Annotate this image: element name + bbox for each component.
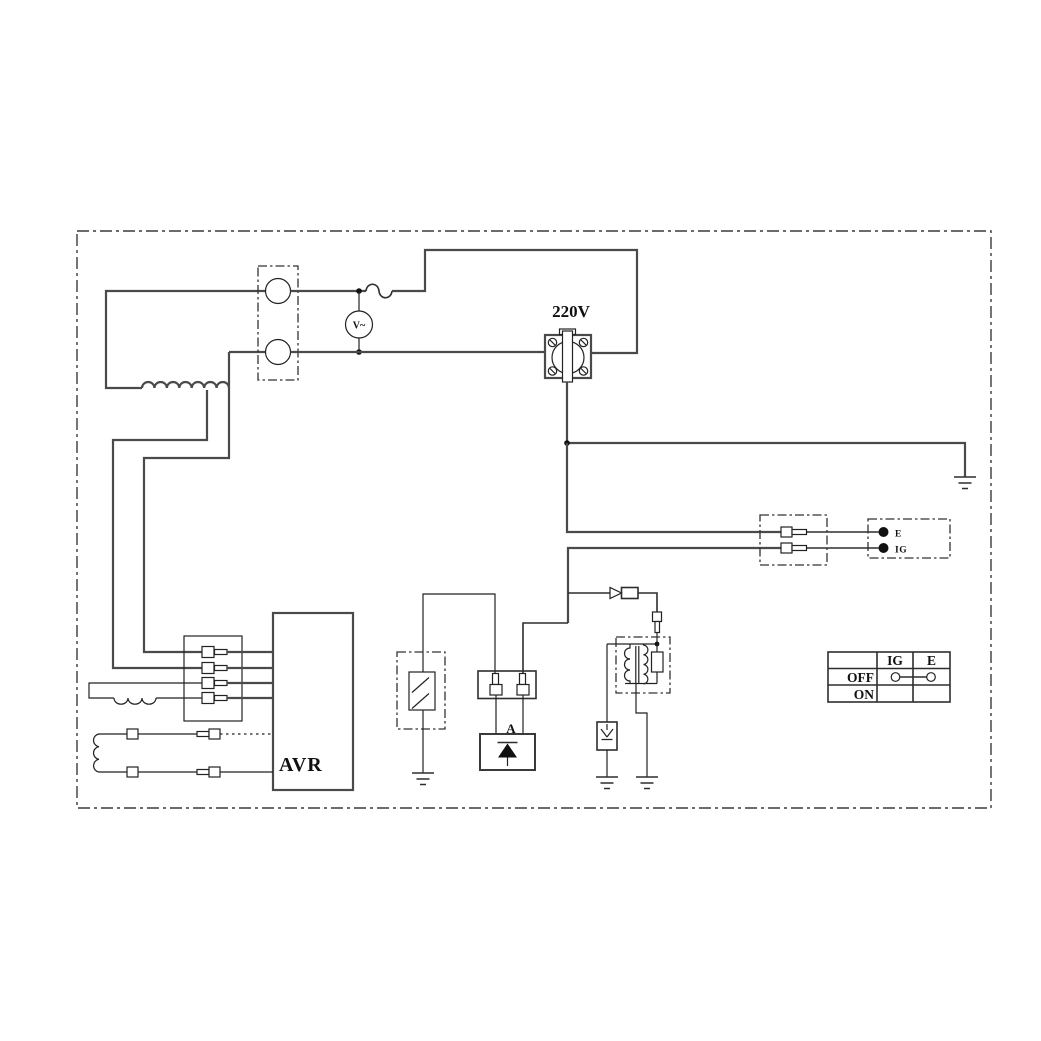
- outlet-voltage-label: 220V: [552, 302, 591, 321]
- inline-connector-block: [760, 515, 827, 565]
- output-terminal-block: [258, 266, 298, 380]
- stator-connector-block: [184, 636, 273, 721]
- main-stator-winding: [106, 291, 266, 668]
- spark-plug: [596, 644, 618, 789]
- engine-switch-table: IG E OFF ON: [828, 652, 950, 702]
- avr-unit: AVR: [273, 613, 353, 790]
- resistor: [652, 652, 664, 672]
- connector-pin: [781, 543, 792, 553]
- diode-icon: [498, 744, 517, 758]
- wiring-diagram-canvas: V~ 220V: [0, 0, 1041, 1041]
- ground-symbol: [596, 777, 618, 789]
- terminal-e-dot: [879, 527, 889, 537]
- voltmeter: V~: [346, 291, 373, 355]
- table-col-ig: IG: [887, 653, 903, 668]
- primary-winding: [625, 644, 631, 684]
- avr-label: AVR: [279, 754, 323, 776]
- terminal-ig-label: IG: [895, 546, 907, 556]
- ground-symbol: [636, 777, 658, 789]
- table-row-on: ON: [854, 687, 875, 702]
- rotor-field-winding: [94, 729, 273, 777]
- avr-feed-wires: [227, 652, 273, 698]
- sensing-winding: [89, 683, 202, 704]
- diode-icon: [610, 588, 622, 599]
- connector-pin: [781, 527, 792, 537]
- fuse-icon: [366, 284, 392, 298]
- terminal-ig-dot: [879, 543, 889, 553]
- bullet-connector: [653, 612, 662, 622]
- outlet-slot: [563, 331, 573, 382]
- terminal-e-label: E: [895, 530, 902, 540]
- fuse-element: [622, 588, 639, 599]
- slip-ring-slashes: [412, 678, 429, 709]
- connector-pins: [202, 647, 227, 704]
- secondary-winding: [644, 644, 648, 684]
- table-row-off: OFF: [847, 670, 874, 685]
- ignition-branch: [523, 588, 662, 675]
- ground-symbol: [412, 773, 434, 785]
- table-col-e: E: [927, 653, 936, 668]
- core-lines: [636, 646, 639, 684]
- spark-gap-icon: [601, 724, 613, 740]
- diode-unit: A: [478, 671, 536, 770]
- ground-symbol: [954, 477, 976, 489]
- outlet-220v: 220V: [545, 302, 591, 382]
- voltmeter-label: V~: [353, 321, 366, 332]
- ignition-coil: [607, 637, 670, 789]
- remote-terminal-box: E IG: [868, 519, 950, 558]
- ground-wire: [564, 382, 976, 489]
